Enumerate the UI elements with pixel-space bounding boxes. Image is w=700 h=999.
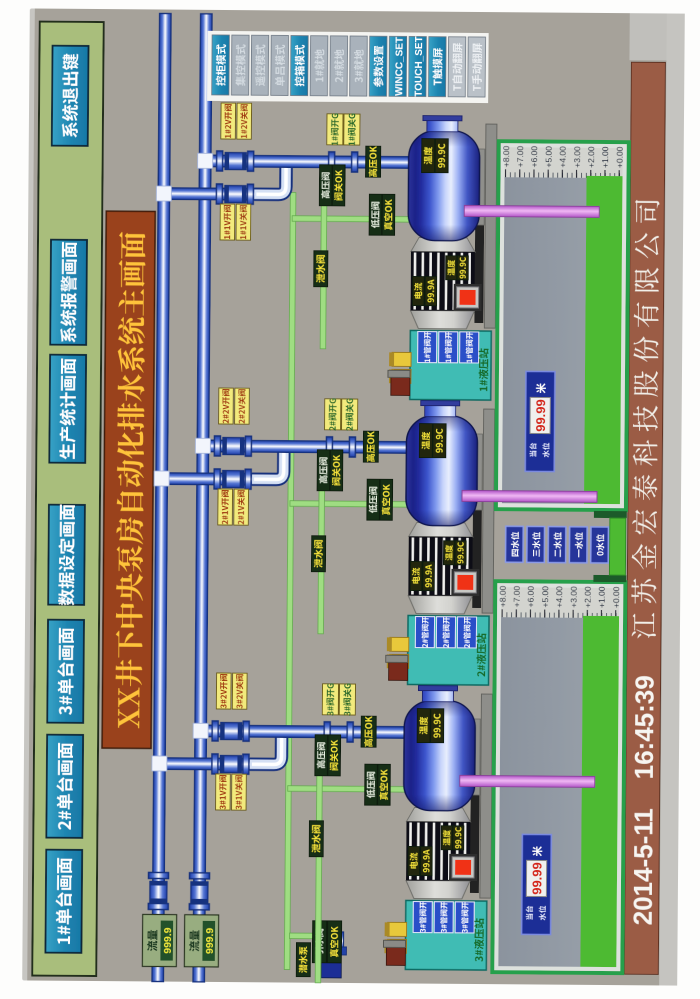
svg-text:+1.00: +1.00 bbox=[600, 146, 610, 168]
svg-text:+8.00: +8.00 bbox=[497, 585, 507, 607]
svg-text:+1.00: +1.00 bbox=[597, 586, 607, 608]
svg-text:2014-5-11: 2014-5-11 bbox=[628, 808, 659, 925]
svg-text:999.9: 999.9 bbox=[204, 928, 216, 955]
svg-text:+4.00: +4.00 bbox=[554, 586, 564, 608]
svg-text:+0.00: +0.00 bbox=[614, 146, 624, 168]
svg-text:99.99: 99.99 bbox=[533, 399, 548, 432]
svg-text:+0.00: +0.00 bbox=[611, 586, 621, 608]
svg-text:+3.00: +3.00 bbox=[568, 586, 578, 608]
svg-text:+7.00: +7.00 bbox=[512, 585, 522, 607]
svg-text:+8.00: +8.00 bbox=[501, 145, 511, 167]
svg-text:TOUCH_SET: TOUCH_SET bbox=[414, 36, 425, 96]
svg-text:+6.00: +6.00 bbox=[529, 146, 539, 168]
svg-text:+3.00: +3.00 bbox=[572, 146, 582, 168]
svg-text:+5.00: +5.00 bbox=[543, 146, 553, 168]
svg-text:+7.00: +7.00 bbox=[515, 146, 525, 168]
svg-text:+5.00: +5.00 bbox=[540, 586, 550, 608]
svg-text:+2.00: +2.00 bbox=[586, 146, 596, 168]
svg-text:+6.00: +6.00 bbox=[526, 586, 536, 608]
svg-text:99.99: 99.99 bbox=[529, 862, 544, 895]
svg-text:999.9: 999.9 bbox=[162, 927, 174, 954]
svg-text:+2.00: +2.00 bbox=[583, 586, 593, 608]
svg-text:+4.00: +4.00 bbox=[558, 146, 568, 168]
svg-text:16:45:39: 16:45:39 bbox=[629, 675, 660, 779]
svg-text:WINCC_SET: WINCC_SET bbox=[394, 37, 405, 96]
